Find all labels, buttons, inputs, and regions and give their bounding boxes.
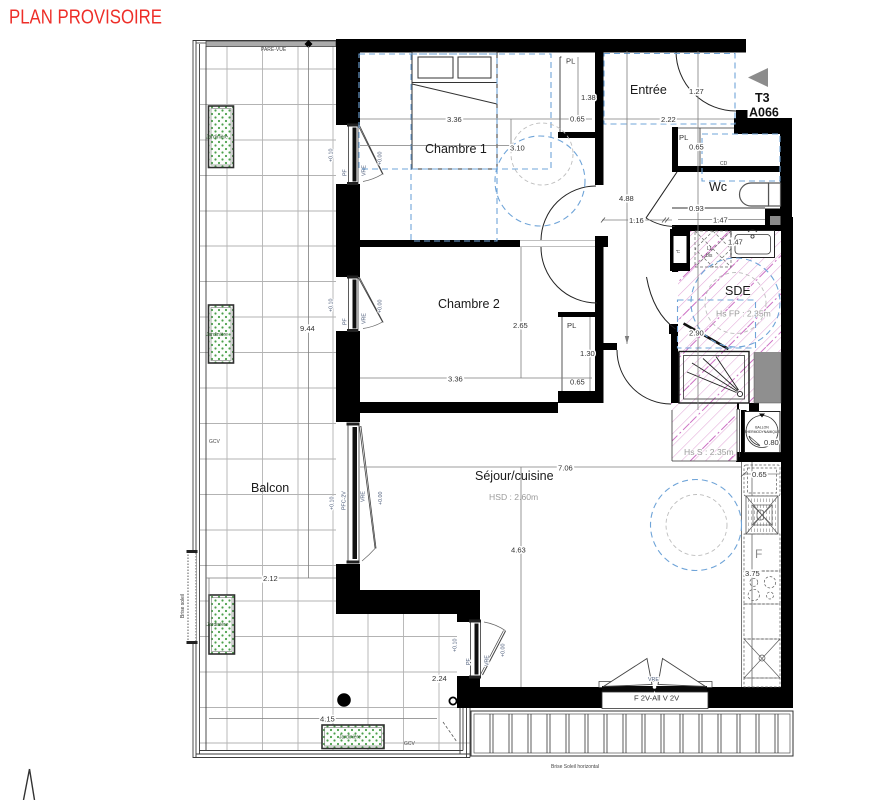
svg-text:GCV: GCV <box>404 741 416 747</box>
svg-text:+0.00: +0.00 <box>378 300 384 313</box>
svg-text:3.36: 3.36 <box>447 115 462 124</box>
svg-text:2.65: 2.65 <box>513 321 528 330</box>
svg-text:1.47: 1.47 <box>728 238 743 247</box>
svg-text:Chambre 2: Chambre 2 <box>438 297 500 311</box>
svg-text:PARE-VUE: PARE-VUE <box>261 47 287 53</box>
svg-text:2.90: 2.90 <box>689 329 704 338</box>
svg-text:1.27: 1.27 <box>689 87 704 96</box>
svg-text:VRE: VRE <box>648 677 659 683</box>
svg-text:1.38: 1.38 <box>581 93 596 102</box>
svg-text:Brise Soleil horizontal: Brise Soleil horizontal <box>551 764 599 770</box>
svg-text:+0.00: +0.00 <box>378 492 384 505</box>
svg-text:+0.10: +0.10 <box>453 639 459 652</box>
svg-text:HSD : 2.60m: HSD : 2.60m <box>489 492 538 502</box>
svg-text:0.93: 0.93 <box>689 204 704 213</box>
svg-text:Jardinière: Jardinière <box>206 332 228 338</box>
svg-text:4.88: 4.88 <box>619 194 634 203</box>
svg-text:BALLON: BALLON <box>755 426 769 430</box>
svg-text:T3: T3 <box>755 91 770 105</box>
svg-text:Séjour/cuisine: Séjour/cuisine <box>475 469 554 483</box>
svg-text:1.16: 1.16 <box>629 216 644 225</box>
svg-text:0.80: 0.80 <box>764 438 779 447</box>
svg-text:9.44: 9.44 <box>300 324 315 333</box>
svg-text:7.06: 7.06 <box>558 464 573 473</box>
svg-text:+0.00: +0.00 <box>501 644 507 657</box>
svg-text:4.63: 4.63 <box>511 546 526 555</box>
svg-text:PFC-2V: PFC-2V <box>342 491 348 510</box>
svg-text:Entrée: Entrée <box>630 83 667 97</box>
svg-text:SDE: SDE <box>725 284 751 298</box>
svg-text:2.24: 2.24 <box>432 674 447 683</box>
svg-text:F: F <box>755 547 762 561</box>
svg-text:PL: PL <box>566 57 575 66</box>
svg-text:PF: PF <box>466 657 472 665</box>
svg-text:VRE: VRE <box>362 313 368 324</box>
svg-text:PL: PL <box>679 133 688 142</box>
svg-text:LL: LL <box>707 246 713 252</box>
svg-text:3.75: 3.75 <box>745 569 760 578</box>
svg-text:Brise soleil: Brise soleil <box>180 594 186 618</box>
svg-text:GCV: GCV <box>209 439 221 445</box>
svg-text:4.15: 4.15 <box>320 715 335 724</box>
svg-text:3.10: 3.10 <box>510 144 525 153</box>
svg-text:0.65: 0.65 <box>570 378 585 387</box>
svg-text:F 2V-All V 2V: F 2V-All V 2V <box>634 694 680 703</box>
svg-text:PF: PF <box>343 317 349 325</box>
svg-text:Jardinière: Jardinière <box>339 735 361 741</box>
svg-text:Hs FP : 2.35m: Hs FP : 2.35m <box>716 309 771 319</box>
svg-text:0.65: 0.65 <box>689 143 704 152</box>
svg-text:2.22: 2.22 <box>661 115 676 124</box>
svg-text:Hs S : 2.35m: Hs S : 2.35m <box>684 447 734 457</box>
svg-text:THERMODYNAMIQUE: THERMODYNAMIQUE <box>744 430 780 434</box>
svg-text:+0.10: +0.10 <box>330 497 336 510</box>
svg-text:0.65: 0.65 <box>570 115 585 124</box>
svg-text:3.36: 3.36 <box>448 375 463 384</box>
svg-text:VRE: VRE <box>485 655 491 666</box>
svg-text:2.12: 2.12 <box>263 574 278 583</box>
svg-text:VRE: VRE <box>361 491 367 502</box>
svg-text:Balcon: Balcon <box>251 481 289 495</box>
svg-text:bis: bis <box>706 253 713 259</box>
svg-text:Jardinière: Jardinière <box>207 622 229 628</box>
svg-text:+0.10: +0.10 <box>329 299 335 312</box>
svg-text:VRE: VRE <box>362 165 368 176</box>
svg-text:Chambre 1: Chambre 1 <box>425 142 487 156</box>
svg-text:0.65: 0.65 <box>752 470 767 479</box>
svg-text:1.47: 1.47 <box>713 216 728 225</box>
svg-text:PL: PL <box>567 321 576 330</box>
svg-text:+0.10: +0.10 <box>329 149 335 162</box>
svg-text:1.30: 1.30 <box>580 349 595 358</box>
svg-text:Wc: Wc <box>709 180 727 194</box>
svg-text:Jardinière: Jardinière <box>206 135 228 141</box>
svg-text:CD: CD <box>720 161 728 167</box>
svg-text:PLAN PROVISOIRE: PLAN PROVISOIRE <box>9 6 162 29</box>
svg-text:A066: A066 <box>749 106 779 120</box>
svg-text:PF: PF <box>343 168 349 176</box>
svg-text:+0.00: +0.00 <box>378 152 384 165</box>
